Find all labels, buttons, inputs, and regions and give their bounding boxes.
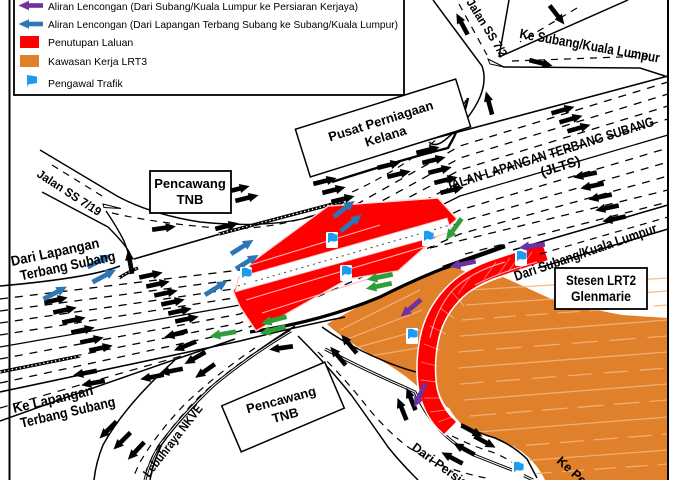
- svg-text:TNB: TNB: [177, 192, 204, 207]
- svg-text:Kawasan Kerja LRT3: Kawasan Kerja LRT3: [48, 56, 147, 68]
- svg-text:Aliran Lencongan (Dari Lapanga: Aliran Lencongan (Dari Lapangan Terbang …: [48, 20, 398, 31]
- svg-text:Penutupan Laluan: Penutupan Laluan: [48, 37, 133, 49]
- svg-text:Aliran Lencongan (Dari Subang/: Aliran Lencongan (Dari Subang/Kuala Lump…: [48, 2, 358, 13]
- svg-text:Pencawang: Pencawang: [154, 176, 226, 191]
- svg-text:Pengawal Trafik: Pengawal Trafik: [48, 78, 123, 90]
- svg-text:Stesen LRT2: Stesen LRT2: [566, 273, 636, 288]
- svg-text:Glenmarie: Glenmarie: [571, 289, 631, 304]
